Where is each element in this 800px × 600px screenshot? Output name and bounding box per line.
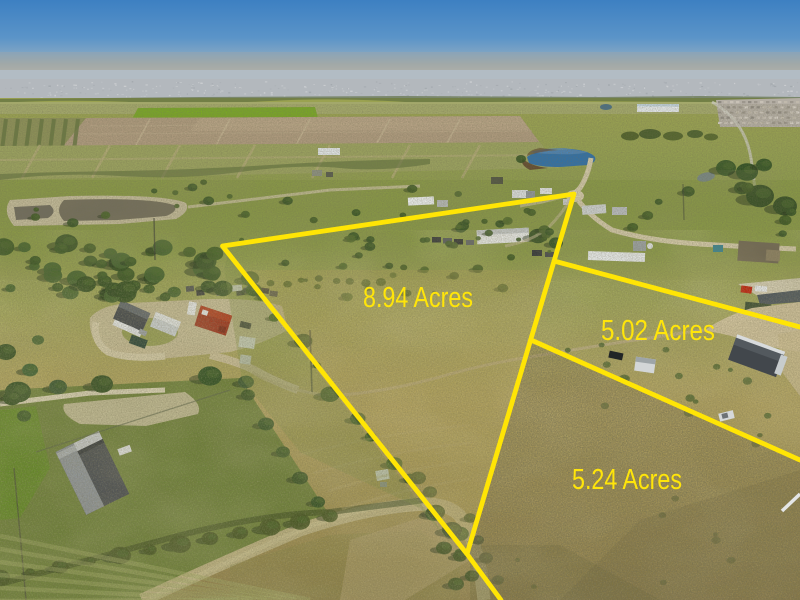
svg-text:8.94 Acres: 8.94 Acres [363,282,473,314]
svg-text:5.24 Acres: 5.24 Acres [572,464,682,496]
svg-text:5.02 Acres: 5.02 Acres [601,315,715,347]
